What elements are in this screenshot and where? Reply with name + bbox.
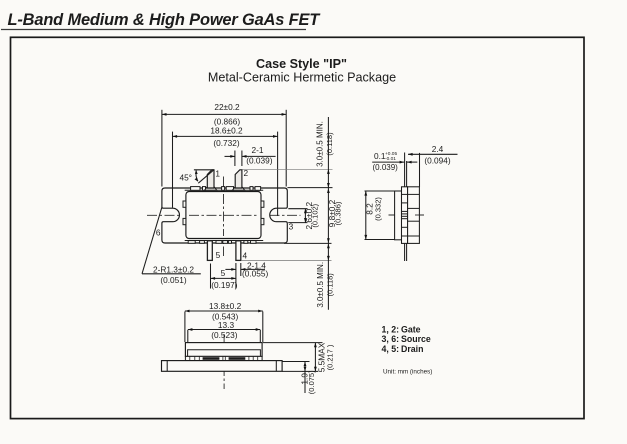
- svg-text:(0.075): (0.075): [307, 370, 316, 394]
- svg-text:18.6±0.2: 18.6±0.2: [210, 125, 243, 135]
- svg-text:(0.094): (0.094): [424, 155, 451, 165]
- svg-text:(0.039): (0.039): [246, 155, 273, 165]
- svg-text:(0.197): (0.197): [211, 280, 238, 290]
- svg-text:5: 5: [216, 250, 221, 260]
- svg-text:6: 6: [156, 228, 161, 238]
- svg-text:2.4: 2.4: [432, 144, 444, 154]
- svg-text:3: 3: [289, 222, 294, 232]
- svg-text:13.3: 13.3: [218, 320, 235, 330]
- svg-text:(0.055): (0.055): [242, 268, 269, 278]
- svg-text:2: 2: [244, 168, 249, 178]
- svg-text:5: 5: [221, 268, 226, 278]
- svg-text:L-Band Medium & High Power GaA: L-Band Medium & High Power GaAs FET: [8, 11, 322, 29]
- svg-text:1: 1: [215, 169, 220, 179]
- svg-text:(0.217 ): (0.217 ): [326, 344, 335, 370]
- svg-text:3, 6:: 3, 6:: [382, 334, 400, 344]
- svg-text:3.0±0.5 MIN.: 3.0±0.5 MIN.: [316, 121, 325, 167]
- svg-text:(0.523): (0.523): [211, 330, 238, 340]
- svg-text:Drain: Drain: [401, 344, 424, 354]
- svg-text:(0.732): (0.732): [213, 138, 240, 148]
- svg-text:(0.332): (0.332): [374, 197, 383, 221]
- svg-text:(0.051): (0.051): [160, 275, 187, 285]
- svg-text:Unit: mm (inches): Unit: mm (inches): [383, 369, 432, 376]
- svg-text:Gate: Gate: [401, 324, 421, 334]
- svg-text:2-1: 2-1: [252, 145, 264, 155]
- svg-text:(0.118): (0.118): [326, 273, 335, 297]
- svg-text:Case Style "IP": Case Style "IP": [256, 57, 347, 71]
- svg-text:(0.102): (0.102): [311, 203, 320, 227]
- svg-text:1, 2:: 1, 2:: [382, 324, 400, 334]
- svg-text:13.8±0.2: 13.8±0.2: [209, 301, 242, 311]
- svg-text:Source: Source: [401, 334, 431, 344]
- svg-text:Metal-Ceramic Hermetic Package: Metal-Ceramic Hermetic Package: [208, 71, 396, 85]
- svg-text:4, 5:: 4, 5:: [382, 344, 400, 354]
- svg-text:22±0.2: 22±0.2: [214, 102, 240, 112]
- svg-text:(0.386): (0.386): [333, 201, 342, 225]
- svg-text:(0.039): (0.039): [373, 163, 399, 172]
- svg-text:4: 4: [243, 250, 248, 260]
- svg-text:3.0±0.5 MIN.: 3.0±0.5 MIN.: [316, 262, 325, 308]
- svg-text:-0.01: -0.01: [385, 156, 396, 162]
- svg-text:(0.118): (0.118): [325, 132, 334, 156]
- svg-text:2-R1.3±0.2: 2-R1.3±0.2: [153, 264, 194, 274]
- svg-text:45°: 45°: [179, 172, 192, 182]
